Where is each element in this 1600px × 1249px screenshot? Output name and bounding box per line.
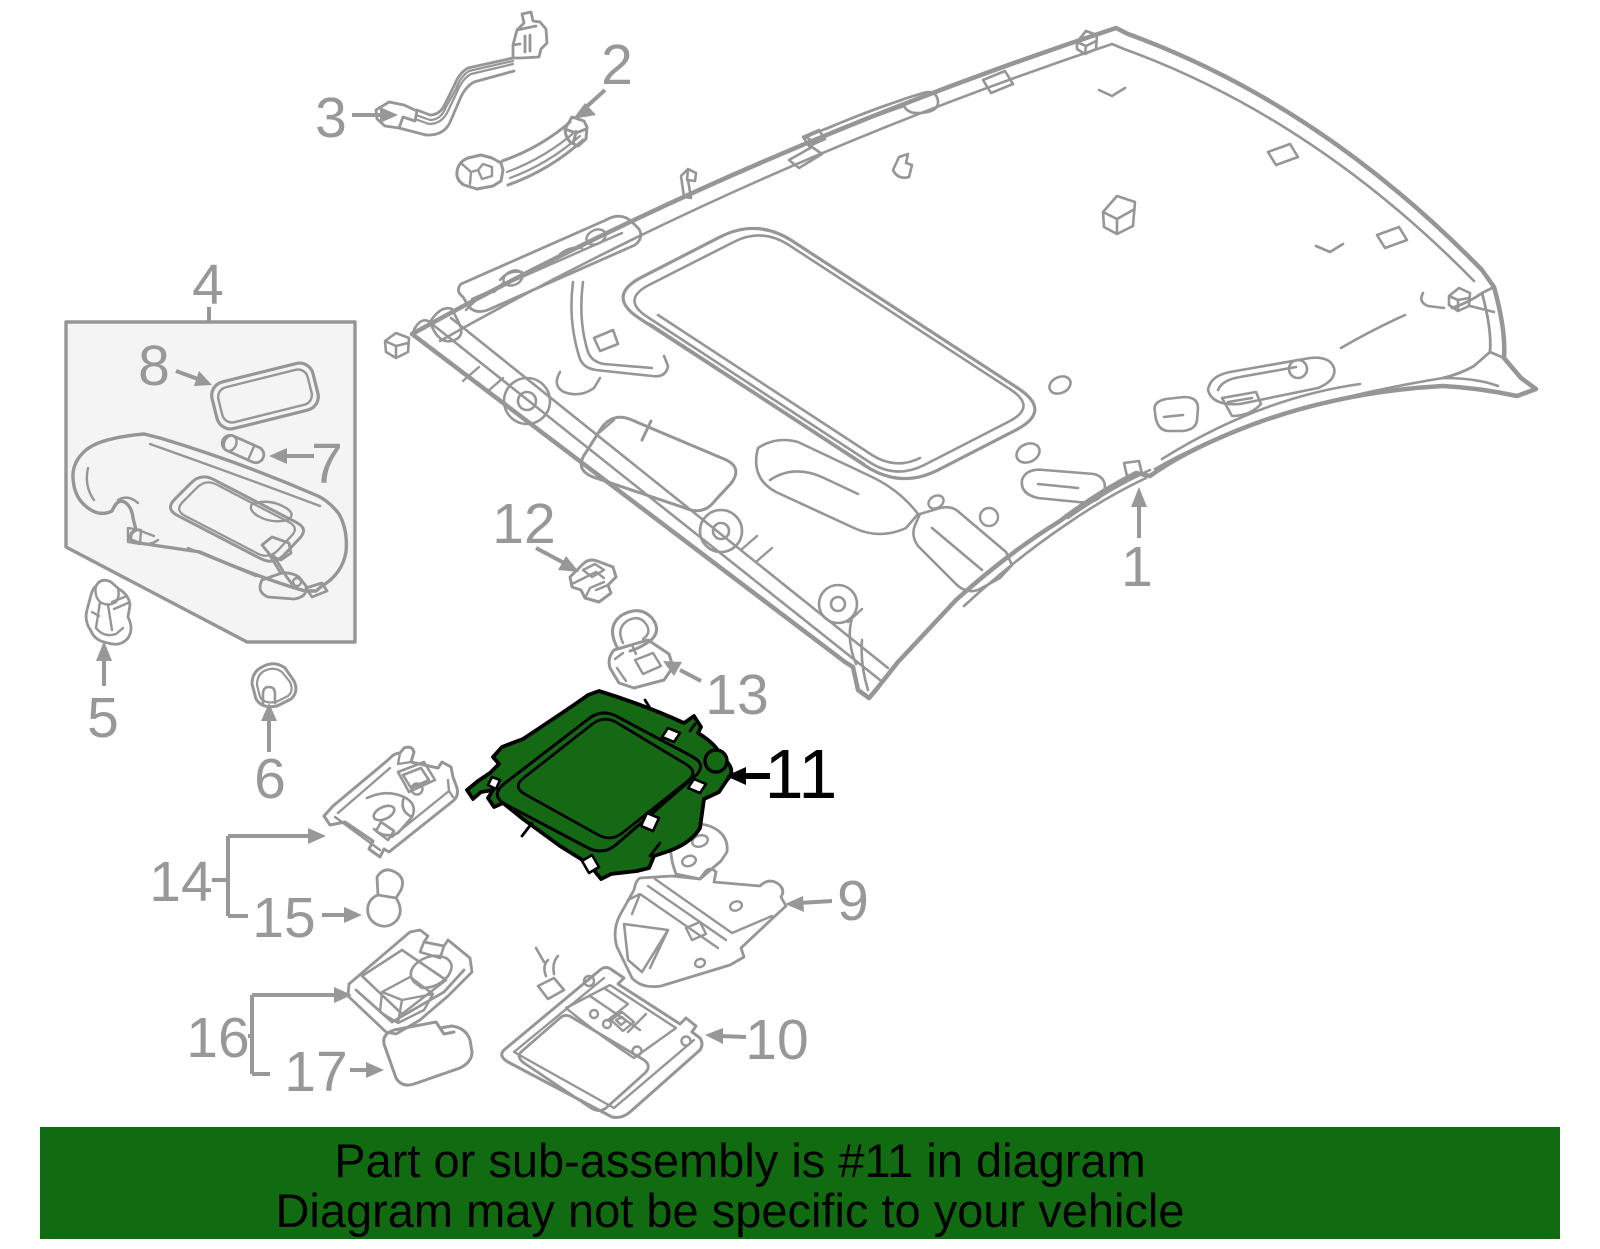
svg-text:5: 5 <box>87 686 119 750</box>
svg-text:11: 11 <box>765 735 838 813</box>
svg-text:1: 1 <box>1121 535 1153 599</box>
svg-text:9: 9 <box>837 869 869 933</box>
svg-text:16: 16 <box>186 1006 249 1070</box>
svg-text:15: 15 <box>252 886 315 950</box>
svg-text:10: 10 <box>745 1008 808 1072</box>
svg-text:17: 17 <box>284 1040 347 1104</box>
svg-text:2: 2 <box>601 33 633 97</box>
svg-text:3: 3 <box>315 86 347 150</box>
svg-text:13: 13 <box>705 663 768 727</box>
svg-text:12: 12 <box>492 492 555 556</box>
svg-text:8: 8 <box>138 334 170 398</box>
svg-text:Diagram may not be specific to: Diagram may not be specific to your vehi… <box>275 1184 1184 1237</box>
svg-text:6: 6 <box>254 747 286 811</box>
svg-text:14: 14 <box>149 850 212 914</box>
svg-text:Part or sub-assembly is #11 in: Part or sub-assembly is #11 in diagram <box>334 1134 1146 1187</box>
svg-text:7: 7 <box>311 432 343 496</box>
